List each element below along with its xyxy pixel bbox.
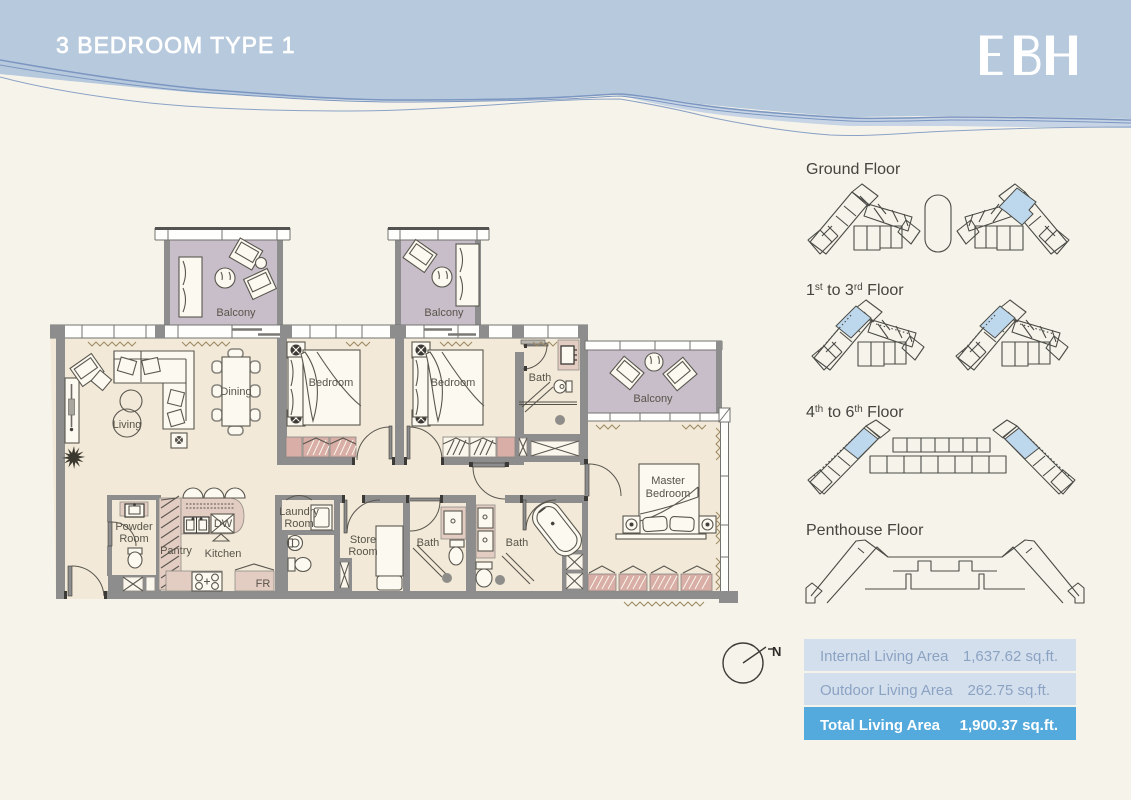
svg-text:3 BEDROOM TYPE 1: 3 BEDROOM TYPE 1	[56, 32, 297, 58]
svg-text:1,637.62 sq.ft.: 1,637.62 sq.ft.	[963, 648, 1058, 665]
svg-text:Powder: Powder	[115, 521, 153, 533]
svg-text:262.75 sq.ft.: 262.75 sq.ft.	[967, 682, 1050, 699]
svg-text:Room: Room	[348, 546, 377, 558]
svg-text:Store: Store	[350, 534, 376, 546]
svg-text:Kitchen: Kitchen	[205, 548, 242, 560]
svg-text:Balcony: Balcony	[633, 393, 673, 405]
svg-text:Total Living Area: Total Living Area	[820, 717, 941, 734]
svg-text:Balcony: Balcony	[216, 307, 256, 319]
svg-text:Pantry: Pantry	[160, 545, 192, 557]
svg-text:Dining: Dining	[220, 386, 251, 398]
svg-text:Internal Living Area: Internal Living Area	[820, 648, 949, 665]
svg-text:Penthouse Floor: Penthouse Floor	[806, 522, 924, 539]
svg-text:Balcony: Balcony	[424, 307, 464, 319]
svg-text:Bath: Bath	[506, 537, 529, 549]
svg-text:Bath: Bath	[529, 372, 552, 384]
svg-text:Outdoor Living Area: Outdoor Living Area	[820, 682, 953, 699]
svg-text:Living: Living	[113, 419, 142, 431]
svg-text:Master: Master	[651, 475, 685, 487]
svg-text:Bedroom: Bedroom	[309, 377, 354, 389]
svg-text:Ground Floor: Ground Floor	[806, 161, 901, 178]
svg-text:DW: DW	[214, 518, 233, 530]
svg-text:Room: Room	[284, 518, 313, 530]
svg-text:N: N	[772, 644, 781, 659]
svg-text:Bedroom: Bedroom	[431, 377, 476, 389]
svg-text:Room: Room	[119, 533, 148, 545]
svg-text:FR: FR	[256, 578, 271, 590]
svg-text:Laundry: Laundry	[279, 506, 319, 518]
svg-text:Bath: Bath	[417, 537, 440, 549]
svg-text:1,900.37 sq.ft.: 1,900.37 sq.ft.	[960, 717, 1058, 734]
svg-text:Bedroom: Bedroom	[646, 488, 691, 500]
